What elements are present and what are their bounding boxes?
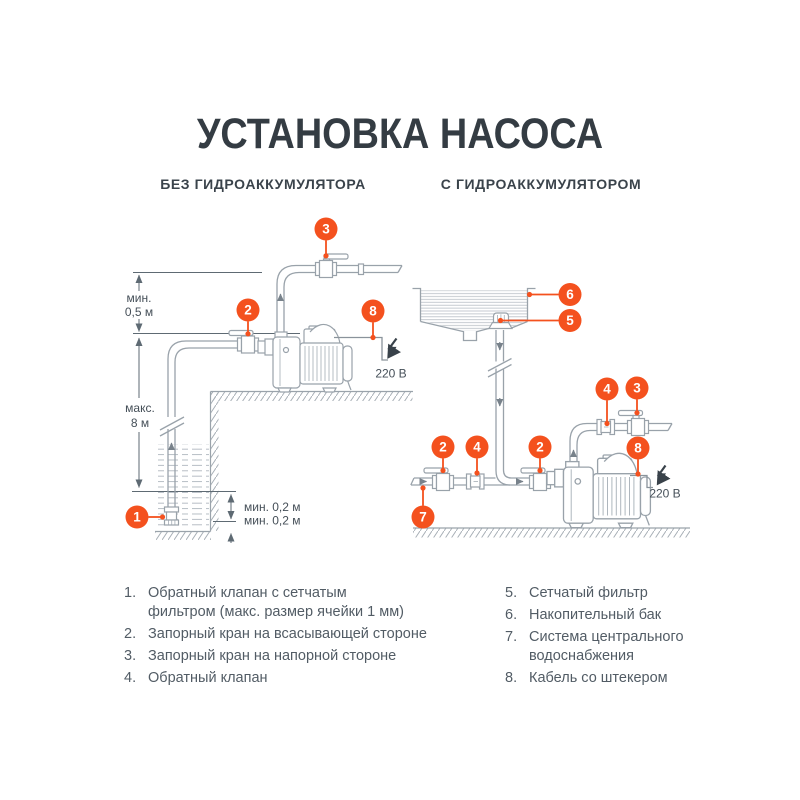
legend-right-column: 5. Сетчатый фильтр 6. Накопительный бак … bbox=[505, 584, 720, 691]
svg-text:5: 5 bbox=[566, 313, 574, 328]
voltage-label: 220 В bbox=[375, 367, 406, 381]
legend-label: Обратный клапан с сетчатым фильтром (мак… bbox=[148, 584, 404, 622]
marker-6: 6 bbox=[527, 283, 582, 306]
check-valve-with-strainer bbox=[165, 507, 179, 525]
installation-diagrams: мин. 0,5 м макс. 8 м мин. 0,2 м мин. 0,2… bbox=[0, 0, 800, 575]
legend-number: 3. bbox=[124, 647, 148, 666]
svg-text:2: 2 bbox=[439, 440, 447, 455]
svg-text:3: 3 bbox=[322, 222, 330, 237]
ground-hatch bbox=[413, 529, 690, 538]
pump-illustration bbox=[258, 324, 352, 392]
check-valve-supply bbox=[467, 474, 485, 489]
well-wall-hatch bbox=[211, 392, 219, 531]
legend-number: 5. bbox=[505, 584, 529, 603]
pipe-coupling-icon bbox=[359, 264, 364, 275]
dimension-min-02: мин. 0,2 м мин. 0,2 м bbox=[213, 495, 301, 544]
svg-text:2: 2 bbox=[536, 440, 544, 455]
svg-text:8: 8 bbox=[369, 304, 377, 319]
legend-label: Запорный кран на всасывающей стороне bbox=[148, 625, 427, 644]
marker-3: 3 bbox=[315, 218, 338, 259]
marker-8: 8 bbox=[362, 300, 385, 341]
pipe-break-icon bbox=[488, 359, 512, 378]
svg-text:мин. 0,2 м: мин. 0,2 м bbox=[244, 514, 301, 528]
pipe-open-end bbox=[398, 266, 402, 273]
pipe-open-end bbox=[668, 424, 672, 431]
legend-label: Запорный кран на напорной стороне bbox=[148, 647, 396, 666]
marker-3: 3 bbox=[626, 377, 649, 416]
legend-item-2: 2. Запорный кран на всасывающей стороне bbox=[124, 625, 464, 644]
diagram-without-accumulator: мин. 0,5 м макс. 8 м мин. 0,2 м мин. 0,2… bbox=[125, 218, 413, 544]
lightning-icon bbox=[658, 466, 666, 484]
legend-number: 6. bbox=[505, 606, 529, 625]
voltage-label: 220 В bbox=[649, 487, 680, 501]
legend-number: 1. bbox=[124, 584, 148, 622]
legend-left-column: 1. Обратный клапан с сетчатым фильтром (… bbox=[124, 584, 464, 691]
pipe-break-icon bbox=[160, 417, 184, 436]
svg-text:0,5 м: 0,5 м bbox=[125, 305, 153, 319]
legend-item-8: 8. Кабель со штекером bbox=[505, 669, 720, 688]
legend-label: Сетчатый фильтр bbox=[529, 584, 648, 603]
legend-item-3: 3. Запорный кран на напорной стороне bbox=[124, 647, 464, 666]
legend-number: 7. bbox=[505, 628, 529, 666]
dimension-min-05: мин. 0,5 м bbox=[125, 273, 300, 334]
marker-4-supply: 4 bbox=[466, 436, 489, 476]
well-bottom-hatch bbox=[155, 532, 211, 540]
ground-hatch bbox=[211, 392, 413, 401]
tank-outlet-pipe bbox=[488, 330, 530, 485]
pressure-pipe bbox=[277, 264, 402, 338]
svg-text:1: 1 bbox=[133, 510, 141, 525]
legend-label: Накопительный бак bbox=[529, 606, 661, 625]
svg-text:8: 8 bbox=[634, 441, 642, 456]
legend-item-5: 5. Сетчатый фильтр bbox=[505, 584, 720, 603]
svg-text:мин.: мин. bbox=[127, 291, 152, 305]
legend-item-4: 4. Обратный клапан bbox=[124, 669, 464, 688]
legend-item-6: 6. Накопительный бак bbox=[505, 606, 720, 625]
legend-item-1: 1. Обратный клапан с сетчатым фильтром (… bbox=[124, 584, 464, 622]
svg-text:4: 4 bbox=[603, 382, 611, 397]
legend-item-7: 7. Система центрального водоснабжения bbox=[505, 628, 720, 666]
svg-text:8 м: 8 м bbox=[131, 416, 149, 430]
legend-number: 2. bbox=[124, 625, 148, 644]
diagram-with-accumulator: 220 В 6 5 4 3 2 4 2 bbox=[411, 283, 690, 538]
legend-number: 4. bbox=[124, 669, 148, 688]
pump-illustration bbox=[547, 453, 650, 527]
svg-text:мин. 0,2 м: мин. 0,2 м bbox=[244, 500, 301, 514]
ball-valve-supply-left bbox=[424, 468, 454, 491]
ground bbox=[413, 528, 690, 538]
legend-label: Система центрального водоснабжения bbox=[529, 628, 684, 666]
svg-text:7: 7 bbox=[419, 510, 427, 525]
svg-text:макс.: макс. bbox=[125, 401, 155, 415]
legend-label: Обратный клапан bbox=[148, 669, 268, 688]
marker-7: 7 bbox=[412, 485, 435, 528]
svg-text:3: 3 bbox=[633, 381, 641, 396]
svg-text:2: 2 bbox=[244, 303, 252, 318]
storage-tank bbox=[413, 289, 536, 341]
svg-text:6: 6 bbox=[566, 287, 574, 302]
marker-4-pressure: 4 bbox=[596, 378, 619, 427]
svg-text:4: 4 bbox=[473, 440, 481, 455]
legend-number: 8. bbox=[505, 669, 529, 688]
legend-label: Кабель со штекером bbox=[529, 669, 668, 688]
lightning-icon bbox=[389, 339, 397, 358]
ball-valve-supply-right bbox=[521, 468, 551, 491]
